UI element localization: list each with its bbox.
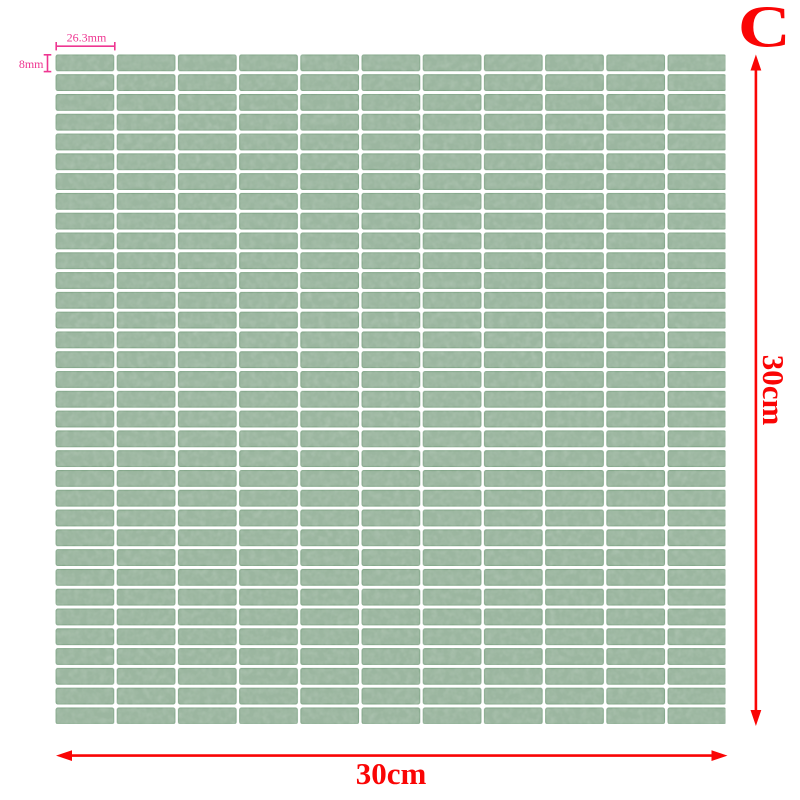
svg-text:26.3mm: 26.3mm [67,31,107,45]
svg-text:8mm: 8mm [19,57,44,71]
svg-text:C: C [738,0,791,60]
svg-text:30cm: 30cm [356,756,427,791]
svg-text:30cm: 30cm [756,355,791,426]
